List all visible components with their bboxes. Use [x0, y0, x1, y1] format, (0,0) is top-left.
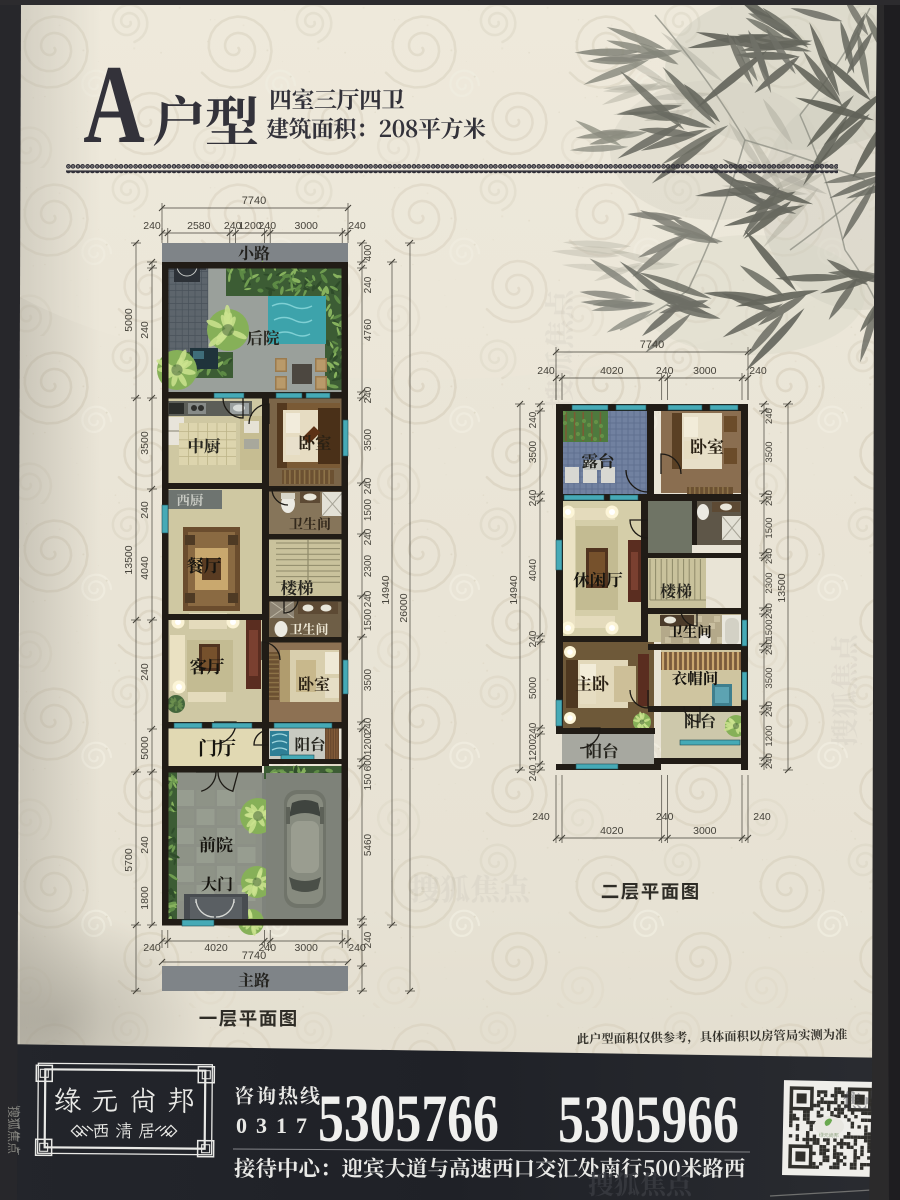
svg-text:5000: 5000 [528, 676, 539, 699]
svg-text:240: 240 [348, 220, 366, 232]
svg-text:1500: 1500 [764, 517, 775, 538]
svg-text:240: 240 [753, 811, 771, 823]
svg-text:240: 240 [764, 548, 775, 564]
svg-text:3500: 3500 [363, 428, 374, 451]
svg-text:绿元尚邦: 绿元尚邦 [819, 1132, 839, 1139]
svg-text:240: 240 [764, 490, 775, 506]
svg-text:240: 240 [764, 408, 775, 424]
svg-text:240: 240 [143, 942, 161, 954]
svg-text:240: 240 [363, 931, 374, 948]
svg-text:3500: 3500 [764, 667, 775, 688]
svg-text:240: 240 [363, 717, 374, 734]
svg-text:3000: 3000 [295, 942, 319, 954]
svg-text:1500: 1500 [363, 498, 374, 521]
svg-text:240: 240 [528, 764, 539, 781]
svg-text:5305766: 5305766 [318, 1081, 499, 1156]
svg-text:1200: 1200 [528, 738, 539, 761]
svg-text:240: 240 [528, 411, 539, 428]
svg-text:240: 240 [749, 365, 767, 377]
svg-text:240: 240 [139, 836, 151, 854]
svg-text:2300: 2300 [764, 572, 775, 593]
svg-text:240: 240 [532, 811, 550, 823]
svg-text:240: 240 [764, 639, 775, 655]
svg-text:240: 240 [363, 386, 374, 403]
svg-text:3500: 3500 [764, 441, 775, 462]
svg-text:3000: 3000 [693, 365, 717, 377]
svg-text:240: 240 [764, 701, 775, 717]
svg-text:240: 240 [363, 276, 374, 293]
svg-text:240: 240 [528, 630, 539, 647]
svg-text:搜狐焦点: 搜狐焦点 [6, 1106, 21, 1154]
svg-text:240: 240 [143, 220, 161, 232]
svg-text:240: 240 [764, 753, 775, 769]
svg-text:150: 150 [363, 773, 374, 790]
svg-text:7740: 7740 [640, 339, 664, 351]
svg-text:2300: 2300 [363, 554, 374, 577]
svg-text:240: 240 [656, 365, 674, 377]
svg-text:14940: 14940 [508, 575, 520, 604]
svg-text:240: 240 [139, 663, 151, 681]
svg-text:600: 600 [363, 754, 374, 771]
svg-text:1200: 1200 [363, 732, 374, 755]
svg-text:240: 240 [764, 603, 775, 619]
svg-text:3500: 3500 [139, 431, 151, 455]
svg-text:7740: 7740 [242, 195, 266, 207]
svg-text:1800: 1800 [139, 886, 151, 910]
svg-text:240: 240 [656, 811, 674, 823]
svg-text:240: 240 [139, 501, 151, 519]
svg-text:4020: 4020 [600, 365, 624, 377]
svg-text:13500: 13500 [776, 573, 788, 602]
svg-text:240: 240 [363, 477, 374, 494]
svg-text:3500: 3500 [363, 668, 374, 691]
svg-text:4020: 4020 [600, 825, 624, 837]
svg-text:240: 240 [528, 722, 539, 739]
svg-text:5305966: 5305966 [558, 1082, 739, 1157]
svg-text:0317: 0317 [236, 1113, 316, 1138]
svg-text:1200: 1200 [764, 725, 775, 746]
svg-text:3500: 3500 [528, 440, 539, 463]
svg-text:240: 240 [363, 590, 374, 607]
svg-text:13500: 13500 [123, 545, 135, 574]
svg-text:240: 240 [363, 528, 374, 545]
svg-text:7740: 7740 [242, 950, 266, 962]
svg-text:14940: 14940 [380, 575, 392, 604]
svg-text:1500: 1500 [764, 619, 775, 640]
svg-text:5000: 5000 [139, 736, 151, 760]
svg-text:5460: 5460 [363, 833, 374, 856]
svg-text:2580: 2580 [187, 220, 211, 232]
svg-text:A: A [83, 42, 145, 167]
svg-text:26000: 26000 [398, 593, 410, 622]
svg-text:4020: 4020 [204, 942, 228, 954]
svg-text:1500: 1500 [363, 608, 374, 631]
svg-text:240: 240 [528, 489, 539, 506]
svg-text:5000: 5000 [123, 308, 135, 332]
svg-text:4040: 4040 [528, 558, 539, 581]
svg-text:400: 400 [363, 244, 374, 261]
svg-text:3000: 3000 [295, 220, 319, 232]
svg-text:3000: 3000 [693, 825, 717, 837]
svg-text:4040: 4040 [139, 556, 151, 580]
svg-text:240: 240 [139, 321, 151, 339]
svg-text:5700: 5700 [123, 848, 135, 872]
svg-text:240: 240 [259, 220, 277, 232]
svg-text:4760: 4760 [363, 318, 374, 341]
